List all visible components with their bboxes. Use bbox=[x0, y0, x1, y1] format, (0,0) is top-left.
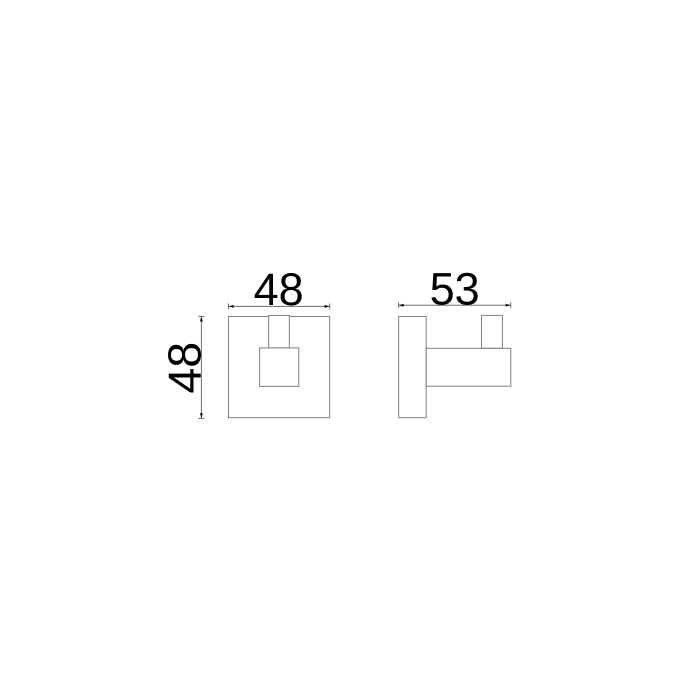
svg-text:48: 48 bbox=[254, 264, 304, 315]
svg-text:53: 53 bbox=[430, 263, 480, 314]
svg-text:48: 48 bbox=[159, 342, 211, 394]
